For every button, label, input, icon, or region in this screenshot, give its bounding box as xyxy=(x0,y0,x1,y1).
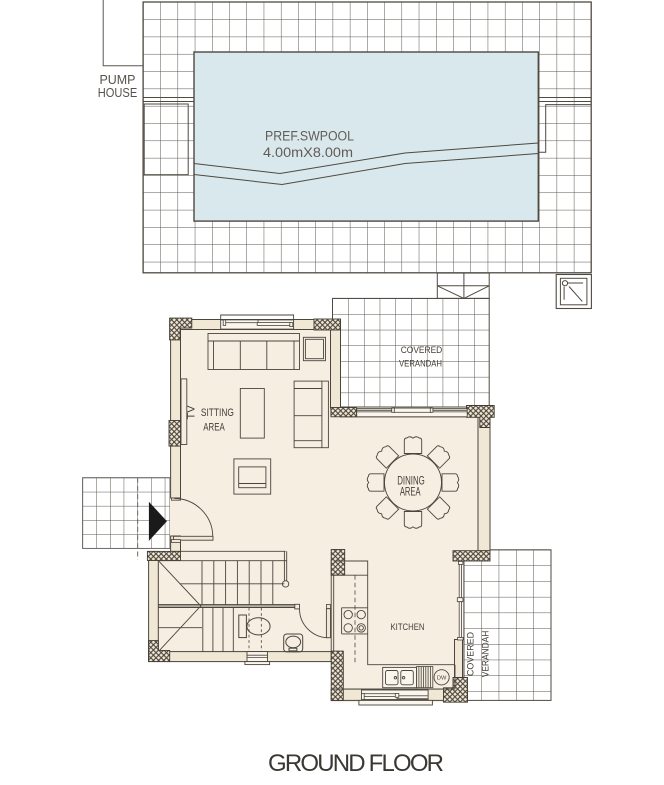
svg-text:COVERED: COVERED xyxy=(401,345,443,356)
svg-text:PREF.SWPOOL: PREF.SWPOOL xyxy=(265,129,354,144)
svg-text:4.00mX8.00m: 4.00mX8.00m xyxy=(263,145,353,160)
svg-text:AREA: AREA xyxy=(400,487,421,499)
svg-text:PUMP: PUMP xyxy=(100,73,136,87)
svg-text:SITTING: SITTING xyxy=(201,407,234,419)
svg-text:VERANDAH: VERANDAH xyxy=(399,359,442,370)
svg-text:AREA: AREA xyxy=(203,422,225,434)
svg-text:COVERED: COVERED xyxy=(466,632,477,676)
svg-text:KITCHEN: KITCHEN xyxy=(391,622,425,633)
svg-text:DW: DW xyxy=(437,675,447,681)
svg-text:HOUSE: HOUSE xyxy=(98,86,138,100)
svg-text:VERANDAH: VERANDAH xyxy=(481,631,492,678)
svg-text:GROUND FLOOR: GROUND FLOOR xyxy=(268,750,444,777)
svg-text:TV: TV xyxy=(186,405,198,420)
